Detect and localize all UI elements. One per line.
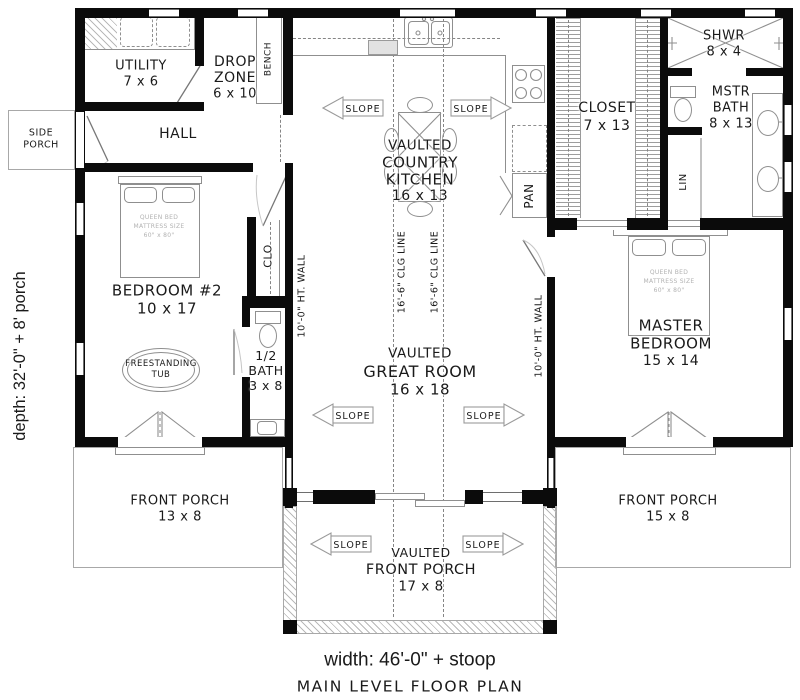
great-room-label-2: GREAT ROOM (363, 364, 476, 380)
wall-shower-bottom-b (746, 68, 783, 76)
slope-label: SLOPE (453, 104, 488, 115)
half-bath-door-arc (234, 329, 242, 373)
bedroom2-dims: 10 x 17 (137, 302, 197, 317)
porch-post (283, 488, 297, 506)
master-closet-dims: 7 x 13 (584, 119, 631, 133)
slope-label: SLOPE (466, 411, 501, 422)
wall-porch-header-b (465, 490, 483, 504)
depth-dimension-label: depth: 32'-0" + 8' porch (12, 271, 29, 440)
bedroom2-door-arc (256, 175, 263, 226)
window-kitchen-sink (400, 9, 455, 17)
half-bath-toilet-tank (255, 311, 281, 324)
wall-clo-left (247, 217, 256, 308)
door-threshold (115, 447, 205, 455)
window (297, 492, 313, 502)
wall-halfbath-left-upper (242, 308, 250, 327)
half-bath-label-2: BATH (248, 365, 283, 378)
wall-porch-header-a (313, 490, 375, 504)
master-bed-text-3: 60" x 80" (654, 288, 685, 294)
closet-rod-line (647, 20, 648, 216)
half-bath-sink-basin (257, 421, 277, 435)
master-toilet-tank (670, 86, 696, 98)
great-room-label-1: VAULTED (388, 347, 452, 361)
master-closet-label: CLOSET (578, 101, 635, 115)
bench-label: BENCH (265, 42, 274, 76)
bed2-text-1: QUEEN BED (140, 215, 178, 221)
wall-right (783, 8, 793, 447)
master-bedroom-dims: 15 x 14 (643, 354, 699, 368)
front-porch-left-label: FRONT PORCH (130, 495, 229, 508)
bed2-pillow (124, 187, 157, 203)
master-door-arc (523, 240, 545, 274)
front-porch-right-dims: 15 x 8 (646, 511, 690, 524)
sink-bowl-right (431, 21, 450, 45)
utility-label: UTILITY (115, 60, 167, 73)
porch-post (283, 620, 297, 634)
shower-label: SHWR (703, 30, 745, 43)
hall-opening-dashed (280, 115, 281, 162)
linen-label: LIN (679, 173, 689, 191)
pantry-label: PAN (523, 183, 535, 208)
master-vanity-sink (757, 166, 779, 192)
porch-column-right (543, 506, 557, 622)
kitchen-label-2: COUNTRY (382, 156, 458, 171)
utility-door-leaf (177, 66, 200, 103)
window (745, 9, 775, 17)
kitchen-label-1: VAULTED (388, 139, 452, 153)
bed2-text-2: MATTRESS SIZE (134, 224, 185, 230)
slope-label: SLOPE (345, 104, 380, 115)
stove (512, 65, 545, 103)
utility-dims: 7 x 6 (124, 76, 159, 89)
wall-linen-top (660, 127, 702, 135)
french-door-opening (626, 437, 713, 447)
half-bath-toilet-bowl (259, 324, 277, 348)
wall-halfbath-top (242, 296, 293, 308)
kitchen-label-3: KITCHEN (386, 173, 455, 188)
slope-arrow-right: SLOPE (463, 402, 525, 428)
dishwasher (368, 40, 398, 55)
wall-bedroom2-top (75, 163, 253, 172)
clg-line-right (443, 19, 444, 617)
slope-label: SLOPE (465, 540, 500, 551)
closet-entry-jamb (577, 226, 627, 227)
window (784, 105, 792, 135)
half-bath-label-1: 1/2 (255, 350, 277, 363)
slope-arrow-left: SLOPE (312, 402, 374, 428)
master-bed-pillow (632, 239, 666, 256)
pantry-bifold-door (500, 176, 512, 215)
clg-line-left (393, 19, 394, 617)
chair (407, 97, 433, 113)
wall-shower-bottom-a (668, 68, 692, 76)
dryer (156, 17, 190, 47)
slope-arrow-left: SLOPE (322, 95, 384, 121)
kitchen-dims: 16 x 13 (392, 189, 448, 203)
master-bed-pillow (672, 239, 706, 256)
width-dimension-label: width: 46'-0" + stoop (324, 651, 495, 670)
window (76, 203, 84, 235)
closet-entry-jamb (577, 220, 627, 221)
ht-wall-label-right: 10'-0" HT. WALL (534, 295, 544, 378)
master-bedroom-label-1: MASTER (639, 319, 704, 334)
window (784, 162, 792, 192)
great-room-dims: 16 x 18 (390, 383, 450, 398)
porch-column-left (283, 506, 297, 622)
master-vanity-sink (757, 110, 779, 136)
master-door-leaf (523, 240, 545, 276)
sliding-door-panel (375, 493, 425, 500)
plan-title: MAIN LEVEL FLOOR PLAN (297, 679, 524, 695)
ht-wall-label-left: 10'-0" HT. WALL (297, 255, 307, 338)
door-threshold (623, 447, 716, 455)
master-door-opening (546, 237, 556, 277)
wall-rt-bottom-b (627, 218, 668, 230)
utility-counter-hatch (83, 15, 117, 49)
wall-closet-bath-divider (660, 8, 668, 230)
hall-label: HALL (159, 127, 197, 141)
bedroom2-label: BEDROOM #2 (112, 284, 222, 299)
front-porch-center-dims: 17 x 8 (398, 580, 443, 594)
clo-shelf-line (279, 220, 280, 296)
window (784, 308, 792, 340)
porch-post (543, 488, 557, 506)
closet-rod-line (568, 20, 569, 216)
upper-cabinet-dashed (293, 38, 500, 39)
tub-label-2: TUB (152, 371, 171, 380)
sink-bowl-left (408, 21, 429, 45)
slope-label: SLOPE (333, 540, 368, 551)
wall-rt-bottom-c (700, 218, 783, 230)
counter-edge-top (293, 55, 505, 56)
master-bed-text-2: MATTRESS SIZE (644, 279, 695, 285)
shower-dims: 8 x 4 (707, 46, 742, 59)
window (238, 9, 268, 17)
clg-line-label-right: 16'-6" CLG LINE (430, 231, 440, 314)
wall-utility-bottom (75, 102, 204, 111)
window (76, 343, 84, 375)
wall-dropzone-kitchen (283, 8, 293, 115)
porch-post (543, 620, 557, 634)
wall-utility-divider (195, 8, 204, 66)
dropzone-label-1: DROP (214, 55, 256, 69)
wall-porch-header-c (522, 490, 543, 504)
slope-label: SLOPE (335, 411, 370, 422)
floor-plan: SLOPE SLOPE SLOPE SLOPE SLOPE SLOPE UTIL… (0, 0, 800, 700)
bath-entry-jamb (668, 226, 700, 227)
window (483, 492, 522, 502)
front-porch-center-label-1: VAULTED (391, 547, 450, 560)
front-porch-center-label-2: FRONT PORCH (366, 563, 476, 578)
bed2-text-3: 60" x 80" (144, 233, 175, 239)
tub-label-1: FREESTANDING (125, 360, 197, 369)
master-bedroom-label-2: BEDROOM (630, 337, 712, 352)
slope-arrow-right: SLOPE (450, 95, 512, 121)
refrigerator (512, 125, 547, 172)
master-toilet-bowl (674, 98, 692, 122)
clg-line-label-left: 16'-6" CLG LINE (397, 231, 407, 314)
front-porch-right-label: FRONT PORCH (618, 495, 717, 508)
master-bed-text-1: QUEEN BED (650, 270, 688, 276)
side-porch-label-1: SIDE (29, 128, 53, 138)
slope-arrow-left: SLOPE (310, 531, 372, 557)
front-porch-left-dims: 13 x 8 (158, 511, 202, 524)
side-porch-door-leaf (87, 116, 108, 161)
washer (120, 17, 153, 47)
master-bath-label-1: MSTR (712, 86, 750, 99)
window (641, 9, 671, 17)
porch-edge-bottom (283, 620, 557, 634)
bath-entry-jamb (668, 220, 700, 221)
half-bath-dims: 3 x 8 (249, 380, 283, 393)
window (536, 9, 566, 17)
dropzone-dims: 6 x 10 (213, 88, 257, 101)
wall-rt-bottom-a (547, 218, 577, 230)
dropzone-label-2: ZONE (214, 71, 256, 85)
bed2-headboard (118, 176, 202, 184)
bed2-pillow (162, 187, 195, 203)
sliding-door-panel (415, 500, 465, 507)
clo-label: CLO (263, 244, 274, 268)
french-door-opening (118, 437, 202, 447)
window (149, 9, 179, 17)
slope-arrow-right: SLOPE (462, 531, 524, 557)
master-bath-dims: 8 x 13 (709, 118, 753, 131)
shower-head-icon (774, 37, 783, 50)
side-porch-door-opening (76, 112, 84, 168)
shower-head-icon (668, 37, 677, 50)
side-porch-label-2: PORCH (23, 140, 59, 150)
master-bath-label-2: BATH (713, 102, 750, 115)
